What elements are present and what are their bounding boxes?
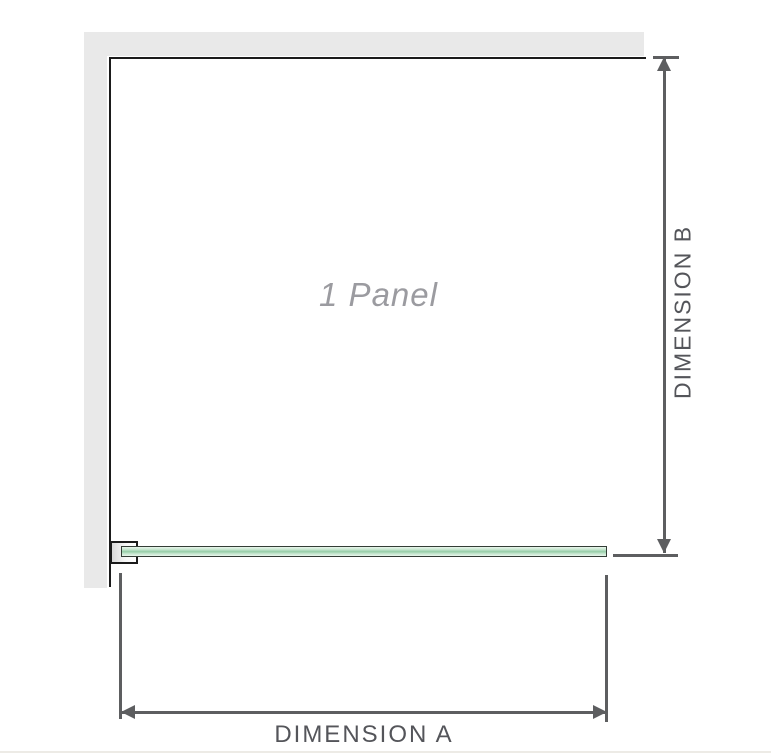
page-bottom-rule xyxy=(0,751,771,753)
panel-outline-top xyxy=(109,57,646,59)
panel-count-label: 1 Panel xyxy=(110,276,647,314)
wall-top-band xyxy=(84,32,644,56)
dimension-a-label: DIMENSION A xyxy=(121,721,607,749)
wall-left-band xyxy=(84,32,107,588)
dimension-b-label: DIMENSION B xyxy=(670,225,697,399)
dimension-a-line xyxy=(121,711,607,714)
panel-outline-left xyxy=(109,57,111,587)
dimension-b-arrow-up-icon xyxy=(657,57,671,71)
dimension-a-arrow-right-icon xyxy=(593,705,607,719)
glass-panel-bar xyxy=(121,546,607,557)
dimension-a-extension-right xyxy=(605,575,608,722)
dimension-b-tick-bottom xyxy=(613,554,678,557)
dimension-a-extension-left xyxy=(119,573,122,719)
dimension-b-arrow-down-icon xyxy=(657,539,671,553)
dimension-a-arrow-left-icon xyxy=(121,705,135,719)
dimension-b-line xyxy=(663,58,666,553)
shower-panel-diagram: 1 Panel DIMENSION B DIMENSION A xyxy=(0,0,771,755)
